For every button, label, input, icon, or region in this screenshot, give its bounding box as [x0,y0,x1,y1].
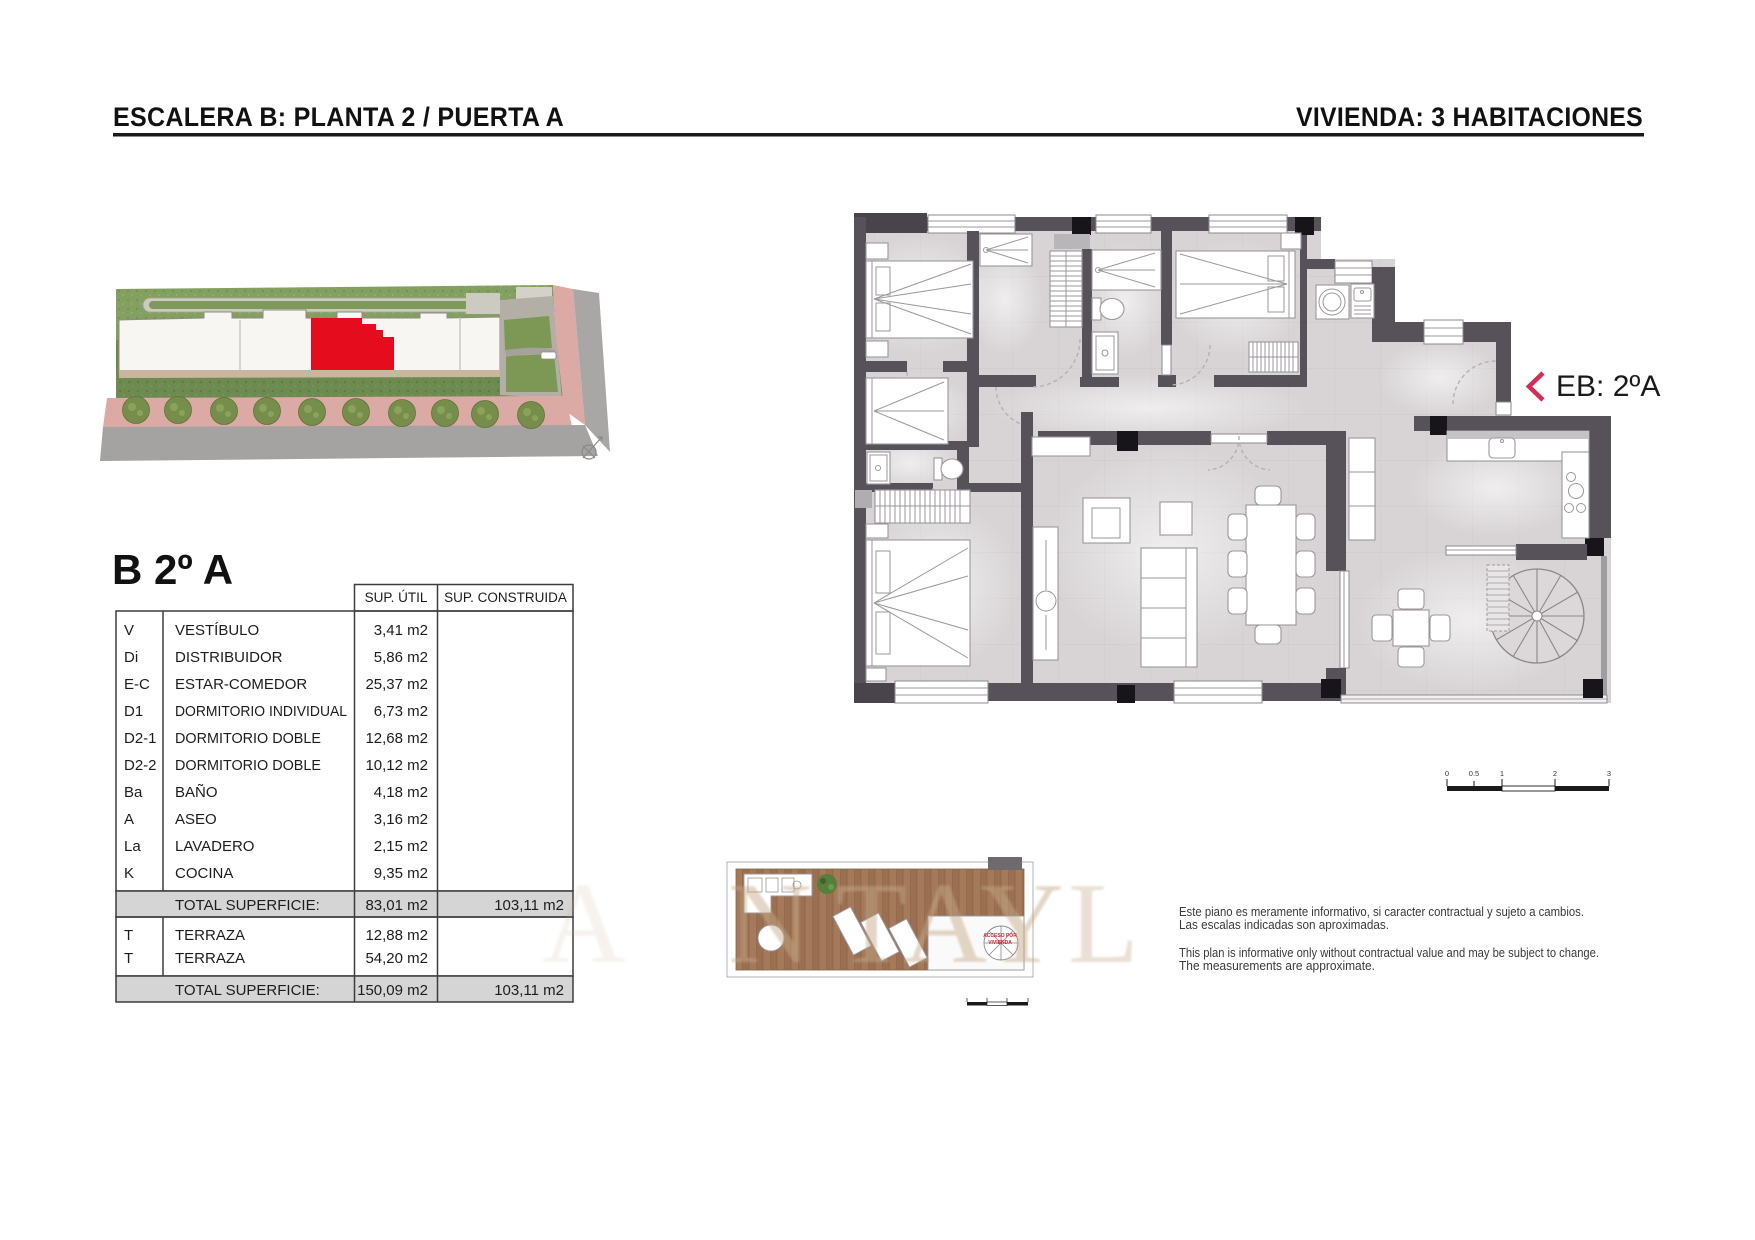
svg-text:T: T [124,927,133,944]
svg-text:6,73 m2: 6,73 m2 [374,703,428,720]
svg-text:DORMITORIO INDIVIDUAL: DORMITORIO INDIVIDUAL [175,703,347,720]
svg-text:L: L [1068,860,1139,988]
svg-text:TERRAZA: TERRAZA [175,950,245,967]
svg-text:DISTRIBUIDOR: DISTRIBUIDOR [175,649,283,666]
svg-text:V: V [124,622,134,639]
svg-text:LAVADERO: LAVADERO [175,838,254,855]
svg-text:3: 3 [1607,769,1611,778]
svg-text:Este piano es meramente inform: Este piano es meramente informativo, si … [1179,905,1584,919]
svg-text:E-C: E-C [124,676,150,693]
svg-text:Las escalas indicadas son apro: Las escalas indicadas son aproximadas. [1179,918,1389,932]
svg-text:A: A [903,860,987,988]
svg-text:4,18 m2: 4,18 m2 [374,784,428,801]
svg-text:EB: 2ºA: EB: 2ºA [1556,370,1660,403]
svg-text:Y: Y [980,860,1064,988]
svg-text:25,37 m2: 25,37 m2 [365,676,428,693]
svg-text:2,15 m2: 2,15 m2 [374,838,428,855]
svg-text:A: A [124,811,134,828]
svg-text:The measurements are approxima: The measurements are approximate. [1179,959,1375,973]
svg-text:Di: Di [124,649,138,666]
svg-text:0.5: 0.5 [1469,769,1479,778]
svg-text:Ba: Ba [124,784,143,801]
svg-text:COCINA: COCINA [175,865,233,882]
svg-text:DORMITORIO DOBLE: DORMITORIO DOBLE [175,757,321,774]
svg-text:12,88 m2: 12,88 m2 [365,927,428,944]
svg-text:150,09 m2: 150,09 m2 [357,982,428,999]
svg-text:ESTAR-COMEDOR: ESTAR-COMEDOR [175,676,307,693]
svg-text:N: N [728,860,812,988]
svg-text:SUP. ÚTIL: SUP. ÚTIL [365,590,428,605]
svg-text:K: K [124,865,134,882]
svg-text:T: T [836,860,907,988]
svg-text:BAÑO: BAÑO [175,784,218,801]
svg-text:ESCALERA B: PLANTA 2 / PUERTA: ESCALERA B: PLANTA 2 / PUERTA A [113,102,564,132]
svg-text:DORMITORIO DOBLE: DORMITORIO DOBLE [175,730,321,747]
svg-text:9,35 m2: 9,35 m2 [374,865,428,882]
svg-text:ASEO: ASEO [175,811,217,828]
svg-text:B 2º A: B 2º A [112,546,233,593]
svg-text:10,12 m2: 10,12 m2 [365,757,428,774]
svg-text:TOTAL SUPERFICIE:: TOTAL SUPERFICIE: [175,982,320,999]
svg-text:2: 2 [1553,769,1557,778]
svg-text:54,20 m2: 54,20 m2 [365,950,428,967]
svg-text:TERRAZA: TERRAZA [175,927,245,944]
svg-text:3,16 m2: 3,16 m2 [374,811,428,828]
svg-text:A: A [542,860,626,988]
svg-text:D2-2: D2-2 [124,757,157,774]
svg-text:SUP. CONSTRUIDA: SUP. CONSTRUIDA [444,590,567,605]
svg-text:VIVIENDA: 3 HABITACIONES: VIVIENDA: 3 HABITACIONES [1296,102,1643,132]
svg-text:5,86 m2: 5,86 m2 [374,649,428,666]
svg-text:12,68 m2: 12,68 m2 [365,730,428,747]
svg-text:0: 0 [1445,769,1449,778]
svg-text:La: La [124,838,141,855]
svg-text:83,01 m2: 83,01 m2 [365,897,428,914]
svg-text:1: 1 [1500,769,1504,778]
svg-text:VESTÍBULO: VESTÍBULO [175,622,259,639]
svg-text:D1: D1 [124,703,143,720]
svg-text:D2-1: D2-1 [124,730,157,747]
svg-text:3,41 m2: 3,41 m2 [374,622,428,639]
svg-text:TOTAL SUPERFICIE:: TOTAL SUPERFICIE: [175,897,320,914]
svg-text:This plan is informative only: This plan is informative only without co… [1179,946,1599,960]
svg-text:T: T [124,950,133,967]
